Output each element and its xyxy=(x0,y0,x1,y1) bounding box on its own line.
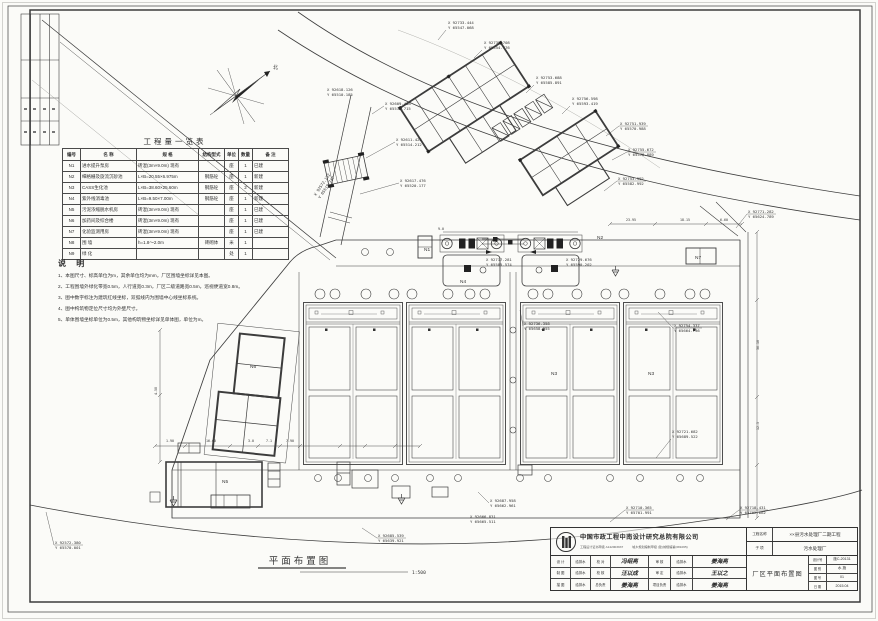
coord-y: Y 65702.662 xyxy=(740,510,766,515)
sig-role: 项目负责 xyxy=(649,579,671,590)
drawing-sheet: 1.90 16.60 3.0 7.1 7.90 23.95 18.15 6.60… xyxy=(0,0,878,621)
dim-value: 4.50 xyxy=(154,387,158,395)
cell: 座 xyxy=(225,205,239,216)
cell: 1 xyxy=(239,205,253,216)
cell: 1 xyxy=(239,227,253,238)
cell xyxy=(199,227,225,238)
dim-value: 16.60 xyxy=(206,439,216,443)
field-row: 图 号 01 xyxy=(809,574,857,583)
project-value: ××县污水处理厂二期工程 xyxy=(773,528,857,541)
sig-role: 设 计 xyxy=(551,556,571,568)
notes-title: 说 明 xyxy=(58,258,338,269)
cell: N5 xyxy=(63,205,81,216)
drawing-caption: 平面布置图 1:500 xyxy=(258,555,426,576)
cell: 已建 xyxy=(253,161,289,172)
cell: 1 xyxy=(239,172,253,183)
cell: 1 xyxy=(239,216,253,227)
table-row: N7化验监测用房砖混(3m×9.0m) 现有座1已建 xyxy=(63,227,289,238)
note-item: 1、本图尺寸、标高单位为m，其余单位均为mm，厂区围墙坐标详见本图。 xyxy=(58,271,338,280)
coord-y: Y 65585.891 xyxy=(536,80,562,85)
cell: L×B=20.55×6.975m xyxy=(137,172,199,183)
coord-y: Y 65658.955 xyxy=(524,326,550,331)
coordinate-label: X 92609.458 Y 65510.715 xyxy=(372,101,411,114)
cell: 砖混(3m×9.0m) 现有 xyxy=(137,161,199,172)
label-n3: N3 xyxy=(551,371,557,377)
sig-role: 给排水 xyxy=(671,568,693,580)
subproject-value: 污水处理厂 xyxy=(773,542,857,555)
project-label: 工程名称 xyxy=(747,528,773,541)
small-structures xyxy=(268,462,532,498)
signature: 汪以成 xyxy=(611,568,649,580)
label-n2: N2 xyxy=(597,235,603,241)
signature: 姜海亮 xyxy=(693,556,746,568)
coordinate-label: X 92733.444 Y 65547.068 xyxy=(438,20,474,40)
table-row: N1进水提升泵房砖混(3m×9.0m) 现有座1已建 xyxy=(63,161,289,172)
label-n6: N6 xyxy=(250,364,256,370)
cell xyxy=(253,238,289,249)
cell: 新建 xyxy=(253,194,289,205)
field-label: 设计号 xyxy=(809,556,827,564)
cell: 米 xyxy=(225,238,239,249)
sig-role: 审 核 xyxy=(649,556,671,568)
field-label: 图 别 xyxy=(809,565,827,573)
table-row: N4紫外线消毒池L×B=9.50×7.00m钢筋砼座1新建 xyxy=(63,194,289,205)
field-value: 水 施 xyxy=(827,565,857,573)
field-row: 日 期 2015.04 xyxy=(809,582,857,590)
basin-1 xyxy=(304,303,403,465)
cell: CASS生化池 xyxy=(81,183,137,194)
coordinate-label: X 92753.992 Y 65582.992 xyxy=(604,176,646,191)
coordinate-label: X 92736.358 Y 65658.955 xyxy=(520,310,550,331)
col-header: 数量 xyxy=(239,149,253,161)
dim-value: 12.5 xyxy=(756,422,760,430)
note-item: 4、图中构筑物定位尺寸均为外壁尺寸。 xyxy=(58,304,338,313)
cell: N8 xyxy=(63,238,81,249)
cell: N1 xyxy=(63,161,81,172)
aeration-ports xyxy=(315,289,710,299)
coord-y: Y 65520.177 xyxy=(400,183,426,188)
coordinate-label: X 92751.939 Y 65570.988 xyxy=(606,121,648,136)
note-item: 2、工程围墙外绿化带宽0.5m，人行道宽0.3m，厂区二级道路宽0.5m，巡视便… xyxy=(58,282,338,291)
coord-y: Y 65624.789 xyxy=(748,214,774,219)
sig-role: 总负责 xyxy=(591,579,611,590)
branch-road xyxy=(320,95,371,245)
coord-y: Y 65510.715 xyxy=(385,106,411,111)
sig-role: 描 图 xyxy=(551,579,571,590)
revision-strip xyxy=(21,14,59,145)
manholes xyxy=(315,249,704,482)
quantity-table: 编号 名 称 规 格 结构型式 单位 数量 备 注 N1进水提升泵房砖混(3m×… xyxy=(62,148,289,260)
note-item: 3、图中数字标注为建筑红线坐标，双弧线内为围墙中心线坐标系统。 xyxy=(58,293,338,302)
drawing-fields: 设计号 施C-20131 图 别 水 施 图 号 01 日 期 2015.04 xyxy=(809,556,857,590)
signature: 冯绍亮 xyxy=(611,556,649,568)
cell: 1 xyxy=(239,238,253,249)
cell: 进水提升泵房 xyxy=(81,161,137,172)
cell: 钢筋砼 xyxy=(199,194,225,205)
project-name-row: 工程名称 ××县污水处理厂二期工程 xyxy=(747,528,857,542)
table-row: N5污泥浓缩脱水机房砖混(3m×9.0m) 现有座1已建 xyxy=(63,205,289,216)
cell: 加药间及综合楼 xyxy=(81,216,137,227)
cell: 钢筋砼 xyxy=(199,183,225,194)
field-row: 图 别 水 施 xyxy=(809,565,857,574)
field-value: 01 xyxy=(827,574,857,582)
field-row: 设计号 施C-20131 xyxy=(809,556,857,565)
label-n5: N5 xyxy=(222,479,228,485)
coordinate-label: X 92666.831 Y 65665.511 xyxy=(470,514,496,524)
coordinate-label: X 92572.380 Y 65570.001 xyxy=(46,512,83,550)
coordinate-label: X 92717.281 Y 65585.574 xyxy=(486,257,512,267)
subproject-label: 子 项 xyxy=(747,542,773,555)
field-value: 施C-20131 xyxy=(827,556,857,564)
coord-y: Y 65570.001 xyxy=(55,545,81,550)
cell: 座 xyxy=(225,161,239,172)
cell: 砖混(3m×9.0m) 现有 xyxy=(137,227,199,238)
col-header: 备 注 xyxy=(253,149,289,161)
table-row: N8围 墙h=1.8～2.0m砖砌体米1 xyxy=(63,238,289,249)
company-section: 中国市政工程中南设计研究总院有限公司 工程设计证书甲级 A142003937 城… xyxy=(551,528,746,556)
coord-y: Y 65547.068 xyxy=(448,25,474,30)
coord-y: Y 65701.991 xyxy=(626,510,652,515)
dim-value: 7.1 xyxy=(266,439,272,443)
cert-number: 工程设计证书甲级 A142003937 xyxy=(580,544,623,549)
coordinate-label: X 92611.426 Y 65514.212 xyxy=(366,137,422,158)
cell: 已建 xyxy=(253,227,289,238)
dim-value: 6.60 xyxy=(720,218,728,222)
cell: N7 xyxy=(63,227,81,238)
coord-y: Y 65665.511 xyxy=(470,519,496,524)
dim-value: 7.90 xyxy=(286,439,294,443)
note-item: 5、单体围墙坐标单位为0.5m，其他构筑物坐标详见单体图，单位为m。 xyxy=(58,315,338,324)
coord-y: Y 65585.574 xyxy=(486,262,512,267)
coordinate-label: X 92685.539 Y 65639.921 xyxy=(362,528,406,543)
sig-role: 校 对 xyxy=(591,556,611,568)
cell: N2 xyxy=(63,172,81,183)
basin-2 xyxy=(407,303,506,465)
sig-role: 给排水 xyxy=(671,579,693,590)
cell: 污泥浓缩脱水机房 xyxy=(81,205,137,216)
cell: 1 xyxy=(239,161,253,172)
cell: 已建 xyxy=(253,205,289,216)
cell: L×B=9.50×7.00m xyxy=(137,194,199,205)
cell xyxy=(199,205,225,216)
cell: 1 xyxy=(239,194,253,205)
label-n7: N7 xyxy=(695,255,701,261)
coord-y: Y 65689.522 xyxy=(672,434,698,439)
field-value: 2015.04 xyxy=(827,582,857,590)
coord-y: Y 65590.202 xyxy=(566,262,592,267)
field-label: 日 期 xyxy=(809,582,827,590)
dim-value: 1.90 xyxy=(166,439,174,443)
dim-value: 9.0 xyxy=(438,227,444,231)
gate-symbol xyxy=(398,494,405,504)
caption-scale: 1:500 xyxy=(412,570,426,576)
sig-role: 审 定 xyxy=(649,568,671,580)
cell: N6 xyxy=(63,216,81,227)
field-label: 图 号 xyxy=(809,574,827,582)
title-block: 中国市政工程中南设计研究总院有限公司 工程设计证书甲级 A142003937 城… xyxy=(550,527,858,591)
company-logo-icon xyxy=(555,531,577,553)
basin-4 xyxy=(624,303,723,465)
dim-value: 3.0 xyxy=(248,439,254,443)
cell: 紫外线消毒池 xyxy=(81,194,137,205)
cell xyxy=(199,161,225,172)
cell: 围 墙 xyxy=(81,238,137,249)
subproject-row: 子 项 污水处理厂 xyxy=(747,542,857,556)
cell: 新建 xyxy=(253,172,289,183)
coord-y: Y 65593.419 xyxy=(572,101,598,106)
coordinate-label: X 92618.126 Y 65510.185 xyxy=(327,87,353,97)
sig-role: 校 核 xyxy=(591,568,611,580)
caption-title: 平面布置图 xyxy=(269,555,332,567)
coordinate-label: X 92754.337 Y 65664.736 xyxy=(658,312,702,333)
cell: N4 xyxy=(63,194,81,205)
quantity-table-title: 工程量一览表 xyxy=(62,136,288,147)
main-road xyxy=(278,12,860,236)
north-compass: 北 xyxy=(208,64,278,124)
coord-y: Y 65662.961 xyxy=(490,503,516,508)
coordinate-label: X 92739.708 Y 65554.776 xyxy=(474,40,510,58)
label-n3: N3 xyxy=(648,371,654,377)
cell: 座 xyxy=(225,227,239,238)
dim-value: 23.95 xyxy=(626,218,636,222)
cell xyxy=(199,216,225,227)
dim-value: 18.15 xyxy=(680,218,690,222)
drawing-name: 厂区平面布置图 xyxy=(747,556,809,590)
table-header-row: 编号 名 称 规 格 结构型式 单位 数量 备 注 xyxy=(63,149,289,161)
table-row: N3CASS生化池L×B=38.60×25.60m钢筋砼座2新建 xyxy=(63,183,289,194)
signature: 王以之 xyxy=(693,568,746,580)
cell: 已建 xyxy=(253,216,289,227)
cell: N3 xyxy=(63,183,81,194)
sig-role: 给排水 xyxy=(571,568,591,580)
col-header: 结构型式 xyxy=(199,149,225,161)
col-header: 单位 xyxy=(225,149,239,161)
cell: 座 xyxy=(225,216,239,227)
cell: 座 xyxy=(225,194,239,205)
signature: 姜海亮 xyxy=(611,579,649,590)
coordinate-label: X 92710.365 Y 65701.991 xyxy=(610,505,654,522)
cell: 新建 xyxy=(253,183,289,194)
coord-y: Y 65664.736 xyxy=(674,328,700,333)
coord-y: Y 65570.988 xyxy=(620,126,646,131)
col-header: 规 格 xyxy=(137,149,199,161)
cell: 化验监测用房 xyxy=(81,227,137,238)
coord-y: Y 65578.889 xyxy=(628,152,654,157)
cell: 砖混(3m×9.0m) 现有 xyxy=(137,216,199,227)
coord-y: Y 65639.921 xyxy=(378,538,404,543)
cell: 座 xyxy=(225,172,239,183)
cell: 细格栅及旋流沉砂池 xyxy=(81,172,137,183)
notes-section: 说 明 1、本图尺寸、标高单位为m，其余单位均为mm，厂区围墙坐标详见本图。 2… xyxy=(58,258,338,324)
sig-role: 给排水 xyxy=(571,579,591,590)
coord-y: Y 65510.185 xyxy=(327,92,353,97)
coordinate-label: X 92756.598 Y 65593.419 xyxy=(562,96,598,114)
table-row: N6加药间及综合楼砖混(3m×9.0m) 现有座1已建 xyxy=(63,216,289,227)
signature-grid: 设 计 给排水 校 对 冯绍亮 审 核 给排水 姜海亮 制 图 给排水 校 核 … xyxy=(551,556,746,590)
cell: 砖砌体 xyxy=(199,238,225,249)
coordinate-label: X 92617.476 Y 65520.177 xyxy=(360,178,426,194)
label-n4: N4 xyxy=(460,279,466,285)
gate-symbol xyxy=(170,496,177,506)
col-header: 名 称 xyxy=(81,149,137,161)
cert-number: 城乡规划编制甲级 (建)城规编第(081065) xyxy=(632,544,688,549)
sig-role: 给排水 xyxy=(671,556,693,568)
gate-symbol xyxy=(612,266,619,276)
coordinate-label: X 92771.282 Y 65624.789 xyxy=(736,209,776,228)
cell: 座 xyxy=(225,183,239,194)
coordinate-label: X 92687.958 Y 65662.961 xyxy=(478,492,516,508)
north-label: 北 xyxy=(273,64,278,71)
cell: 2 xyxy=(239,183,253,194)
coordinate-label: X 92729.676 Y 65590.202 xyxy=(566,257,592,267)
coord-y: Y 65514.212 xyxy=(396,142,422,147)
label-n1: N1 xyxy=(424,247,430,253)
coord-y: Y 65582.992 xyxy=(618,181,644,186)
table-row: N2细格栅及旋流沉砂池L×B=20.55×6.975m钢筋砼座1新建 xyxy=(63,172,289,183)
company-name: 中国市政工程中南设计研究总院有限公司 xyxy=(580,532,746,541)
cell: 钢筋砼 xyxy=(199,172,225,183)
coord-y: Y 65554.776 xyxy=(484,45,510,50)
sig-role: 制 图 xyxy=(551,568,571,580)
dim-value: 36.10 xyxy=(756,340,760,350)
col-header: 编号 xyxy=(63,149,81,161)
coordinate-label: X 92721.682 Y 65689.522 xyxy=(656,429,698,458)
sig-role: 给排水 xyxy=(571,556,591,568)
cell: L×B=38.60×25.60m xyxy=(137,183,199,194)
signature: 姜海亮 xyxy=(693,579,746,590)
cell: 砖混(3m×9.0m) 现有 xyxy=(137,205,199,216)
cell: h=1.8～2.0m xyxy=(137,238,199,249)
